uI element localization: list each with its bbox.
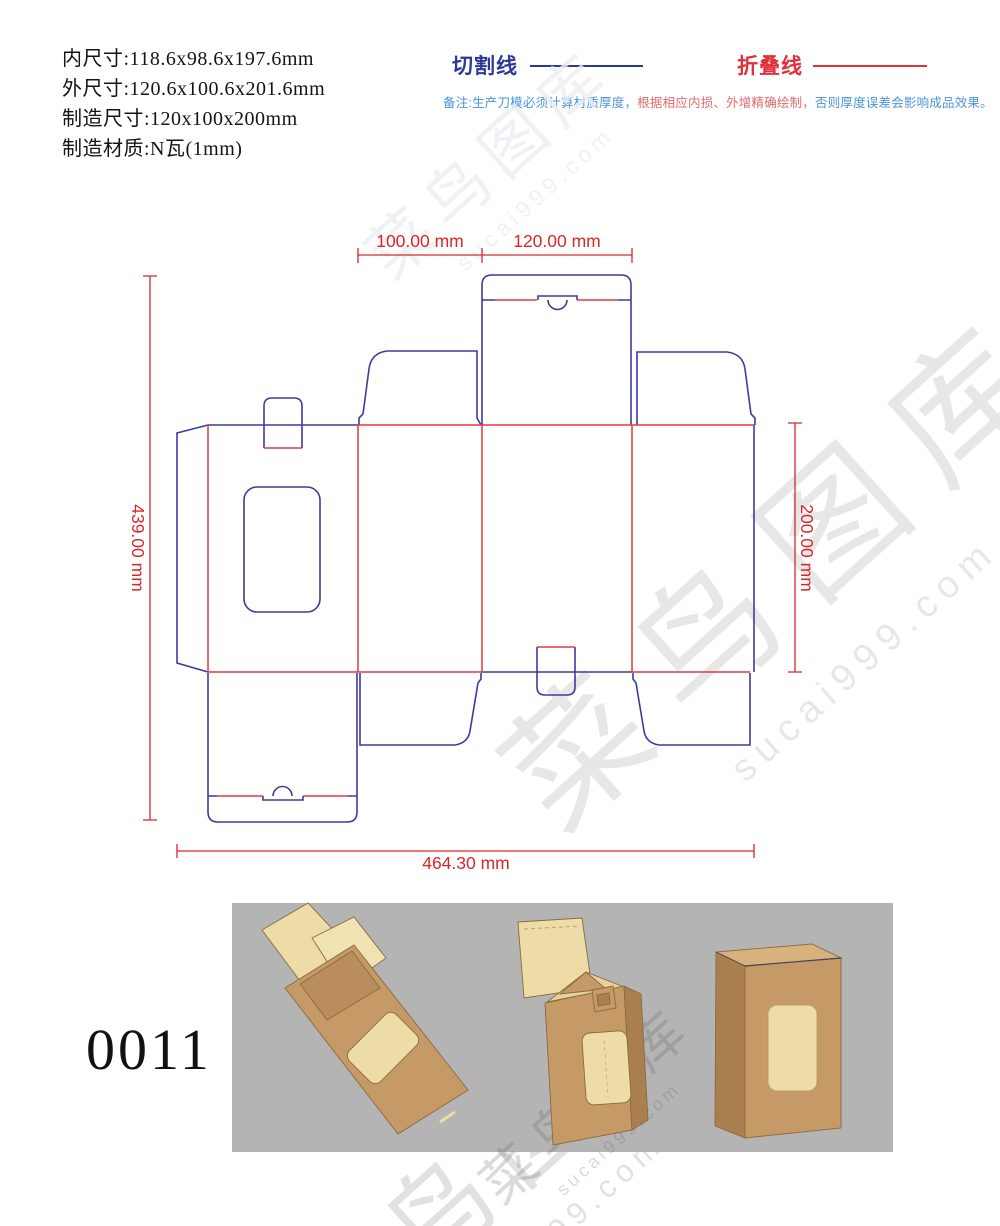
dim-panel-height-label: 200.00 mm	[797, 504, 817, 592]
dim-top-right-label: 120.00 mm	[513, 231, 601, 251]
dim-top-left-label: 100.00 mm	[376, 231, 464, 251]
window-cutout	[244, 487, 320, 612]
watermark-middle: 菜鸟图库 sucai999.com	[476, 283, 1000, 906]
top-dust-flap-left	[359, 351, 481, 425]
render-closed-box	[715, 944, 841, 1138]
top-thumb-notch	[538, 296, 577, 310]
glue-flap	[177, 425, 208, 672]
page: { "specs": { "line1": "内尺寸:118.6x98.6x19…	[0, 0, 1000, 1226]
vertical-folds	[208, 425, 632, 672]
render-panel: 菜鸟图库 sucai999.com	[232, 903, 893, 1226]
design-code: 0011	[86, 1016, 212, 1083]
top-dust-flap-right	[637, 352, 755, 425]
bottom-thumb-notch	[263, 787, 303, 801]
hanger-tab	[264, 398, 302, 448]
dim-total-height-label: 439.00 mm	[128, 504, 148, 592]
bottom-dust-flap-left	[360, 673, 481, 745]
dim-total-width-label: 464.30 mm	[422, 853, 510, 873]
top-lid-sides	[482, 300, 631, 425]
